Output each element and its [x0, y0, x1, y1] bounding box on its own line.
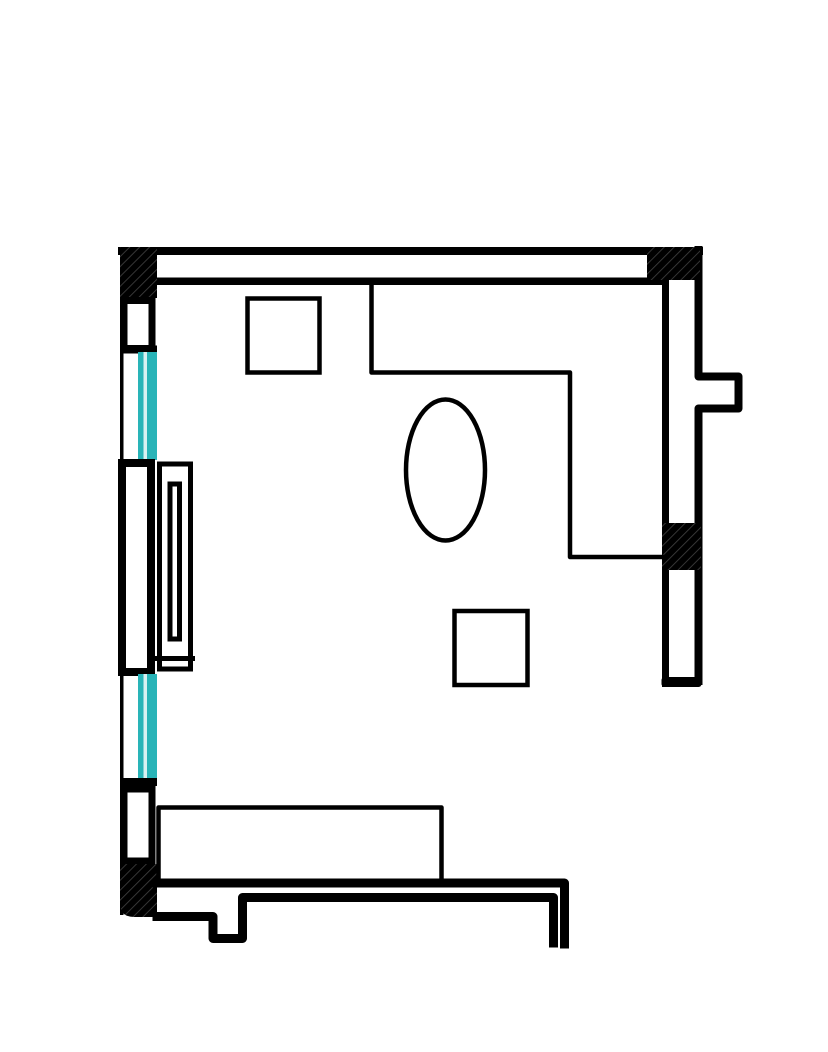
floorplan-page [0, 0, 828, 1052]
left-wall-segment-upper [124, 301, 152, 349]
right-wall-inner-line [662, 277, 669, 687]
corner-hatch-top-left [120, 247, 157, 298]
corner-hatch-top-right [647, 247, 700, 280]
floor-plan-drawing [0, 0, 828, 1052]
table-square-upper [248, 299, 320, 373]
right-wall-hatch-block [662, 523, 701, 570]
table-square-center [455, 611, 528, 685]
bench-outline [159, 808, 442, 882]
window-lower-glass [138, 674, 157, 779]
table-oval [406, 400, 485, 541]
top-wall-outer-band [118, 247, 703, 255]
window-sill-lower [120, 778, 157, 786]
left-wall-segment-lower [124, 789, 152, 861]
left-wall-pier [122, 463, 151, 672]
right-wall-end-cap [662, 677, 702, 687]
top-wall-inner-band [157, 278, 665, 286]
wall-and-furniture-layer [118, 247, 739, 944]
window-lower-glass-stripe [144, 674, 148, 779]
bottom-wall-inner-line-with-step [157, 898, 554, 944]
window-upper-glass [138, 352, 157, 460]
window-upper-glass-stripe [144, 352, 148, 460]
right-wall-outer-line [699, 250, 739, 681]
corner-hatch-bottom-left [120, 864, 157, 917]
